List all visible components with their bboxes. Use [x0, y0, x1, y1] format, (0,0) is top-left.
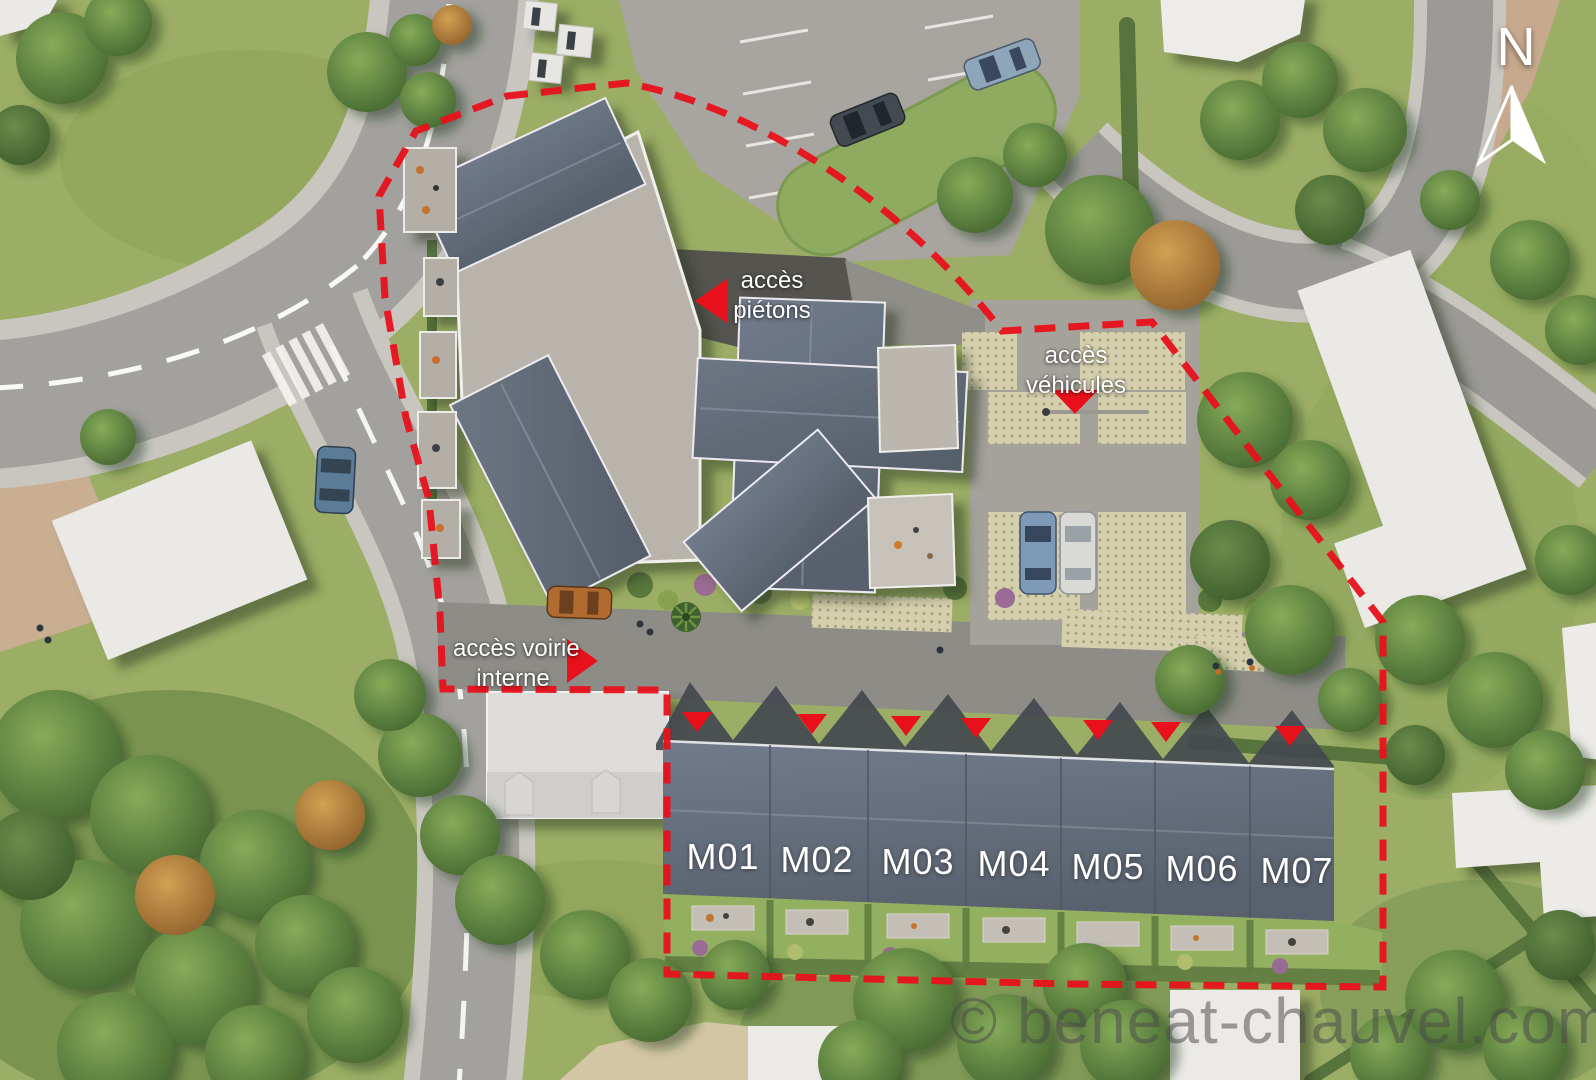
pedestrian-access-label: accès piétons: [712, 266, 832, 326]
unit-label-m04: M04: [974, 843, 1054, 885]
unit-label-m06: M06: [1162, 848, 1242, 890]
internal-road-access-line1: accès voirie: [453, 634, 573, 664]
car-on-road: [315, 446, 356, 514]
pedestrian-access-line1: accès: [712, 266, 832, 296]
vehicle-access-line2: véhicules: [1016, 371, 1136, 401]
unit-label-m07: M07: [1257, 850, 1337, 892]
watermark-text: © beneat-chauvel.com: [950, 984, 1596, 1058]
aerial-render-layer: [0, 0, 1596, 1080]
internal-road-access-line2: interne: [453, 664, 573, 694]
pedestrian-access-line2: piétons: [712, 296, 832, 326]
east-terrace: [868, 494, 955, 588]
unit-label-m01: M01: [683, 836, 763, 878]
vehicle-access-label: accès véhicules: [1016, 341, 1136, 401]
palm-tree: [671, 602, 701, 632]
car-lot-blue: [1020, 512, 1056, 594]
north-label: N: [1486, 16, 1546, 78]
unit-label-m03: M03: [878, 841, 958, 883]
unit-label-m02: M02: [777, 839, 857, 881]
houses-roof: [663, 741, 1334, 921]
internal-road-access-label: accès voirie interne: [453, 634, 573, 694]
site-plan-render: accès piétons accès véhicules accès voir…: [0, 0, 1596, 1080]
vehicle-access-line1: accès: [1016, 341, 1136, 371]
car-lot-silver: [1060, 512, 1096, 594]
unit-label-m05: M05: [1068, 846, 1148, 888]
car-orange: [547, 586, 612, 619]
east-wing-flat-roof: [878, 345, 958, 452]
existing-building-south-west: [487, 692, 668, 818]
